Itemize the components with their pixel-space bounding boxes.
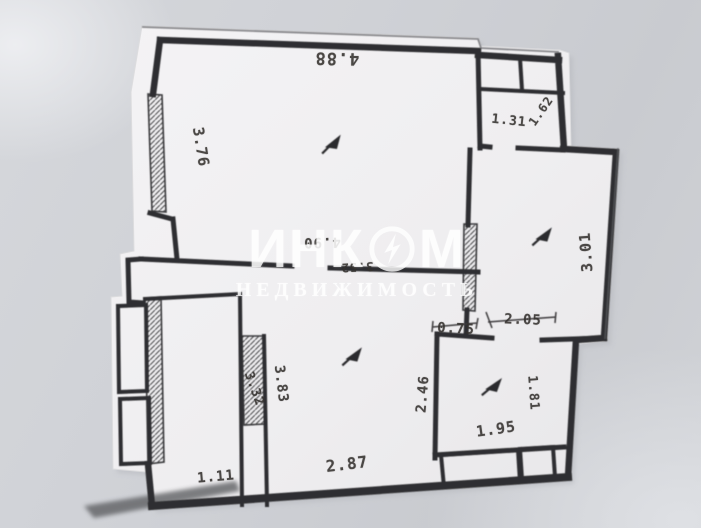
dim-kitchen-top-width: 2.05 [504, 311, 542, 328]
incom-watermark: ИНК М НЕДВИЖИМОСТЬ [232, 222, 482, 302]
dim-top-width: 4.88 [314, 48, 359, 69]
watermark-title: ИНК М [232, 222, 482, 276]
watermark-title-left: ИНК [248, 222, 365, 276]
floorplan-photo: 4.88 3.76 1.31 1.62 3.01 4.90 3.52 0.75 … [0, 0, 701, 528]
dim-passage-width: 0.75 [437, 320, 476, 338]
dim-right-room-height: 3.01 [576, 231, 597, 272]
dim-kitchen-left-height: 2.46 [413, 375, 432, 414]
watermark-subtitle: НЕДВИЖИМОСТЬ [232, 279, 482, 302]
dim-narrow-room-width: 1.11 [197, 467, 236, 486]
watermark-title-right: М [419, 222, 466, 276]
lightning-circle-icon [367, 224, 417, 274]
window-hatch-room1 [148, 94, 166, 212]
dim-kitchen-right-height: 1.81 [524, 375, 541, 411]
